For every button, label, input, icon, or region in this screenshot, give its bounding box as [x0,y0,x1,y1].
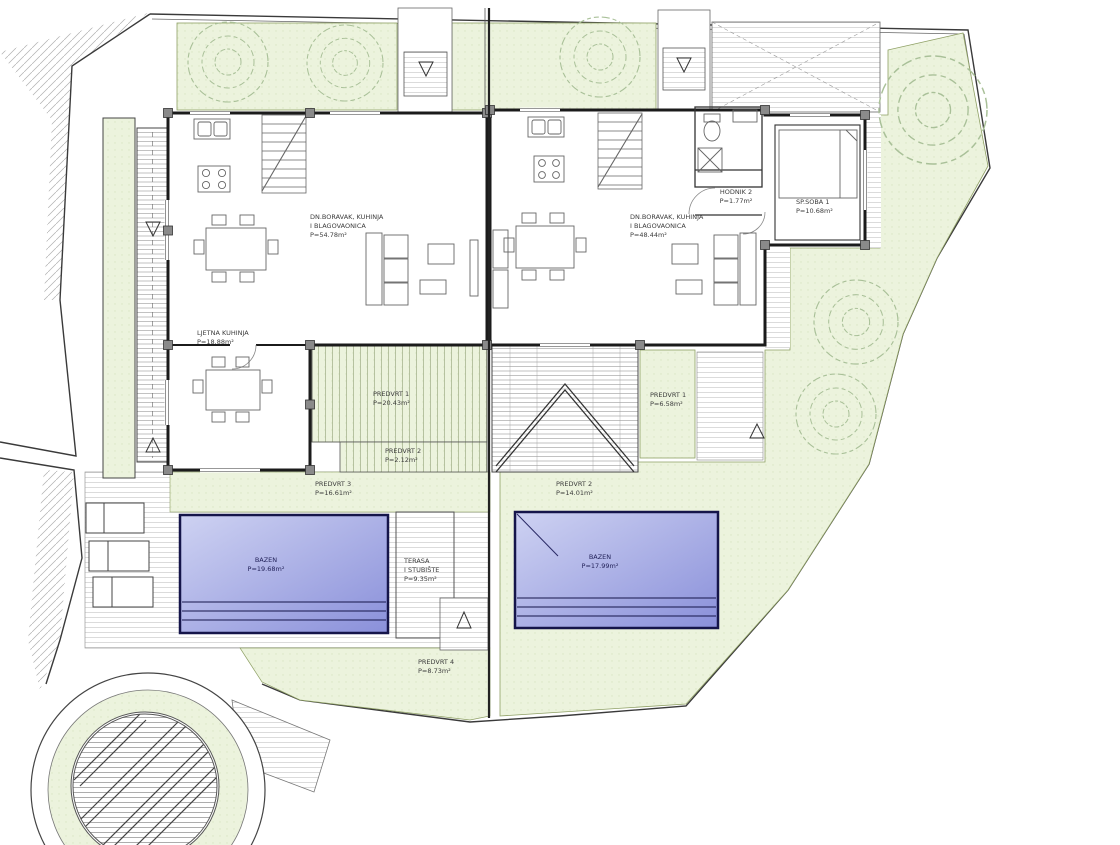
pool-name: BAZEN [568,553,632,562]
garden-name: PREDVRT 2 [385,447,421,456]
hedge-strip [103,118,135,478]
room-area: P=10.68m² [796,207,833,216]
room-name: SP.SOBA 1 [796,198,833,207]
label-left-predvrt4: PREDVRT 4 P=8.73m² [418,658,454,676]
terrace-name-2: I STUBIŠTE [404,566,439,575]
garden-name: PREDVRT 4 [418,658,454,667]
garden-top-middle [452,23,656,110]
label-ljetna-kuhinja: LJETNA KUHINJA P=18.88m² [197,329,249,347]
deck-right-strip [697,352,763,460]
pool-area: P=19.68m² [234,565,298,574]
room-area: P=1.77m² [710,197,762,206]
site-plan: DN.BORAVAK, KUHINJA I BLAGOVAONICA P=54.… [0,0,1120,845]
label-left-predvrt1: PREDVRT 1 P=20.43m² [373,390,410,408]
room-area: P=18.88m² [197,338,249,347]
label-left-living: DN.BORAVAK, KUHINJA I BLAGOVAONICA P=54.… [310,213,383,239]
room-name: HODNIK 2 [710,188,762,197]
pool-name: BAZEN [234,556,298,565]
room-name: DN.BORAVAK, KUHINJA [310,213,383,222]
roof-deck-top-right [712,22,880,112]
room-area: P=54.78m² [310,231,383,240]
garden-area: P=8.73m² [418,667,454,676]
label-pool-right: BAZEN P=17.99m² [568,553,632,571]
floor-plan-drawing [0,0,1120,845]
label-left-predvrt2: PREDVRT 2 P=2.12m² [385,447,421,465]
garden-area: P=16.61m² [315,489,352,498]
deck-below-bedroom [765,248,790,348]
terrace-area: P=9.35m² [404,575,439,584]
entrance-walkway-left [398,8,452,113]
terrace-name: TERASA [404,557,439,566]
label-left-predvrt3: PREDVRT 3 P=16.61m² [315,480,352,498]
label-right-predvrt2: PREDVRT 2 P=14.01m² [556,480,593,498]
pool-left [180,515,388,633]
central-staircase [492,345,638,472]
label-hodnik2: HODNIK 2 P=1.77m² [710,188,762,206]
bottom-entry-steps [440,598,488,650]
label-right-living: DN.BORAVAK, KUHINJA I BLAGOVAONICA P=48.… [630,213,703,239]
garden-area: P=2.12m² [385,456,421,465]
garden-top-left [177,23,397,110]
garden-name: PREDVRT 1 [373,390,410,399]
label-terasa: TERASA I STUBIŠTE P=9.35m² [404,557,439,583]
room-name-2: I BLAGOVAONICA [630,222,703,231]
label-spsoba1: SP.SOBA 1 P=10.68m² [796,198,833,216]
room-area: P=48.44m² [630,231,703,240]
side-staircase [137,128,168,462]
garden-area: P=14.01m² [556,489,593,498]
entrance-walkway-right [658,10,710,110]
room-name: LJETNA KUHINJA [197,329,249,338]
garden-area: P=20.43m² [373,399,410,408]
garden-area: P=6.58m² [650,400,686,409]
garden-name: PREDVRT 3 [315,480,352,489]
garden-name: PREDVRT 1 [650,391,686,400]
label-pool-left: BAZEN P=19.68m² [234,556,298,574]
parking-loungers [86,503,153,607]
garden-name: PREDVRT 2 [556,480,593,489]
room-name: DN.BORAVAK, KUHINJA [630,213,703,222]
room-name-2: I BLAGOVAONICA [310,222,383,231]
pool-area: P=17.99m² [568,562,632,571]
label-right-predvrt1: PREDVRT 1 P=6.58m² [650,391,686,409]
